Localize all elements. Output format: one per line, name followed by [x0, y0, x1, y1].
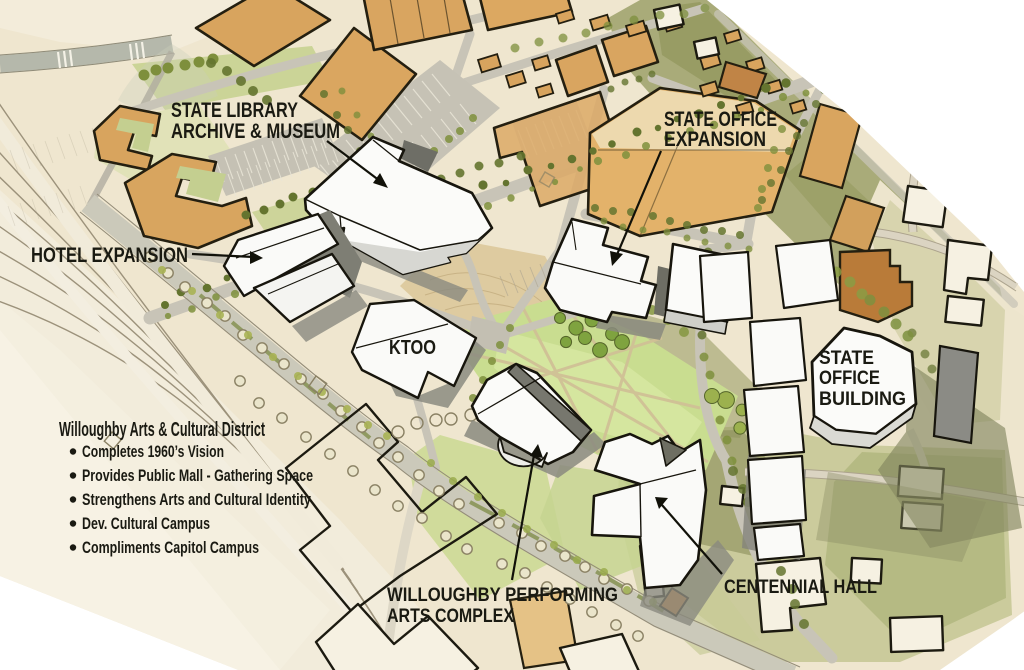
svg-text:BUILDING: BUILDING	[819, 389, 906, 410]
svg-text:Provides Public Mall - Gatheri: Provides Public Mall - Gathering Space	[82, 466, 313, 485]
svg-text:Dev. Cultural Campus: Dev. Cultural Campus	[82, 514, 210, 533]
svg-text:Completes 1960’s Vision: Completes 1960’s Vision	[82, 442, 224, 461]
svg-text:STATE: STATE	[819, 348, 874, 369]
svg-text:ARTS COMPLEX: ARTS COMPLEX	[387, 605, 514, 627]
svg-text:Compliments Capitol Campus: Compliments Capitol Campus	[82, 538, 259, 557]
svg-text:CENTENNIAL HALL: CENTENNIAL HALL	[724, 577, 877, 598]
svg-text:KTOO: KTOO	[389, 337, 436, 359]
svg-text:OFFICE: OFFICE	[819, 368, 880, 389]
svg-text:ARCHIVE & MUSEUM: ARCHIVE & MUSEUM	[171, 120, 340, 143]
svg-text:STATE LIBRARY: STATE LIBRARY	[171, 99, 298, 122]
svg-text:EXPANSION: EXPANSION	[664, 128, 766, 151]
svg-text:Willoughby Arts & Cultural Dis: Willoughby Arts & Cultural District	[59, 419, 265, 441]
svg-text:WILLOUGHBY PERFORMING: WILLOUGHBY PERFORMING	[387, 584, 618, 606]
svg-text:HOTEL EXPANSION: HOTEL EXPANSION	[31, 244, 188, 267]
svg-text:Strengthens Arts and Cultural: Strengthens Arts and Cultural Identity	[82, 490, 311, 509]
